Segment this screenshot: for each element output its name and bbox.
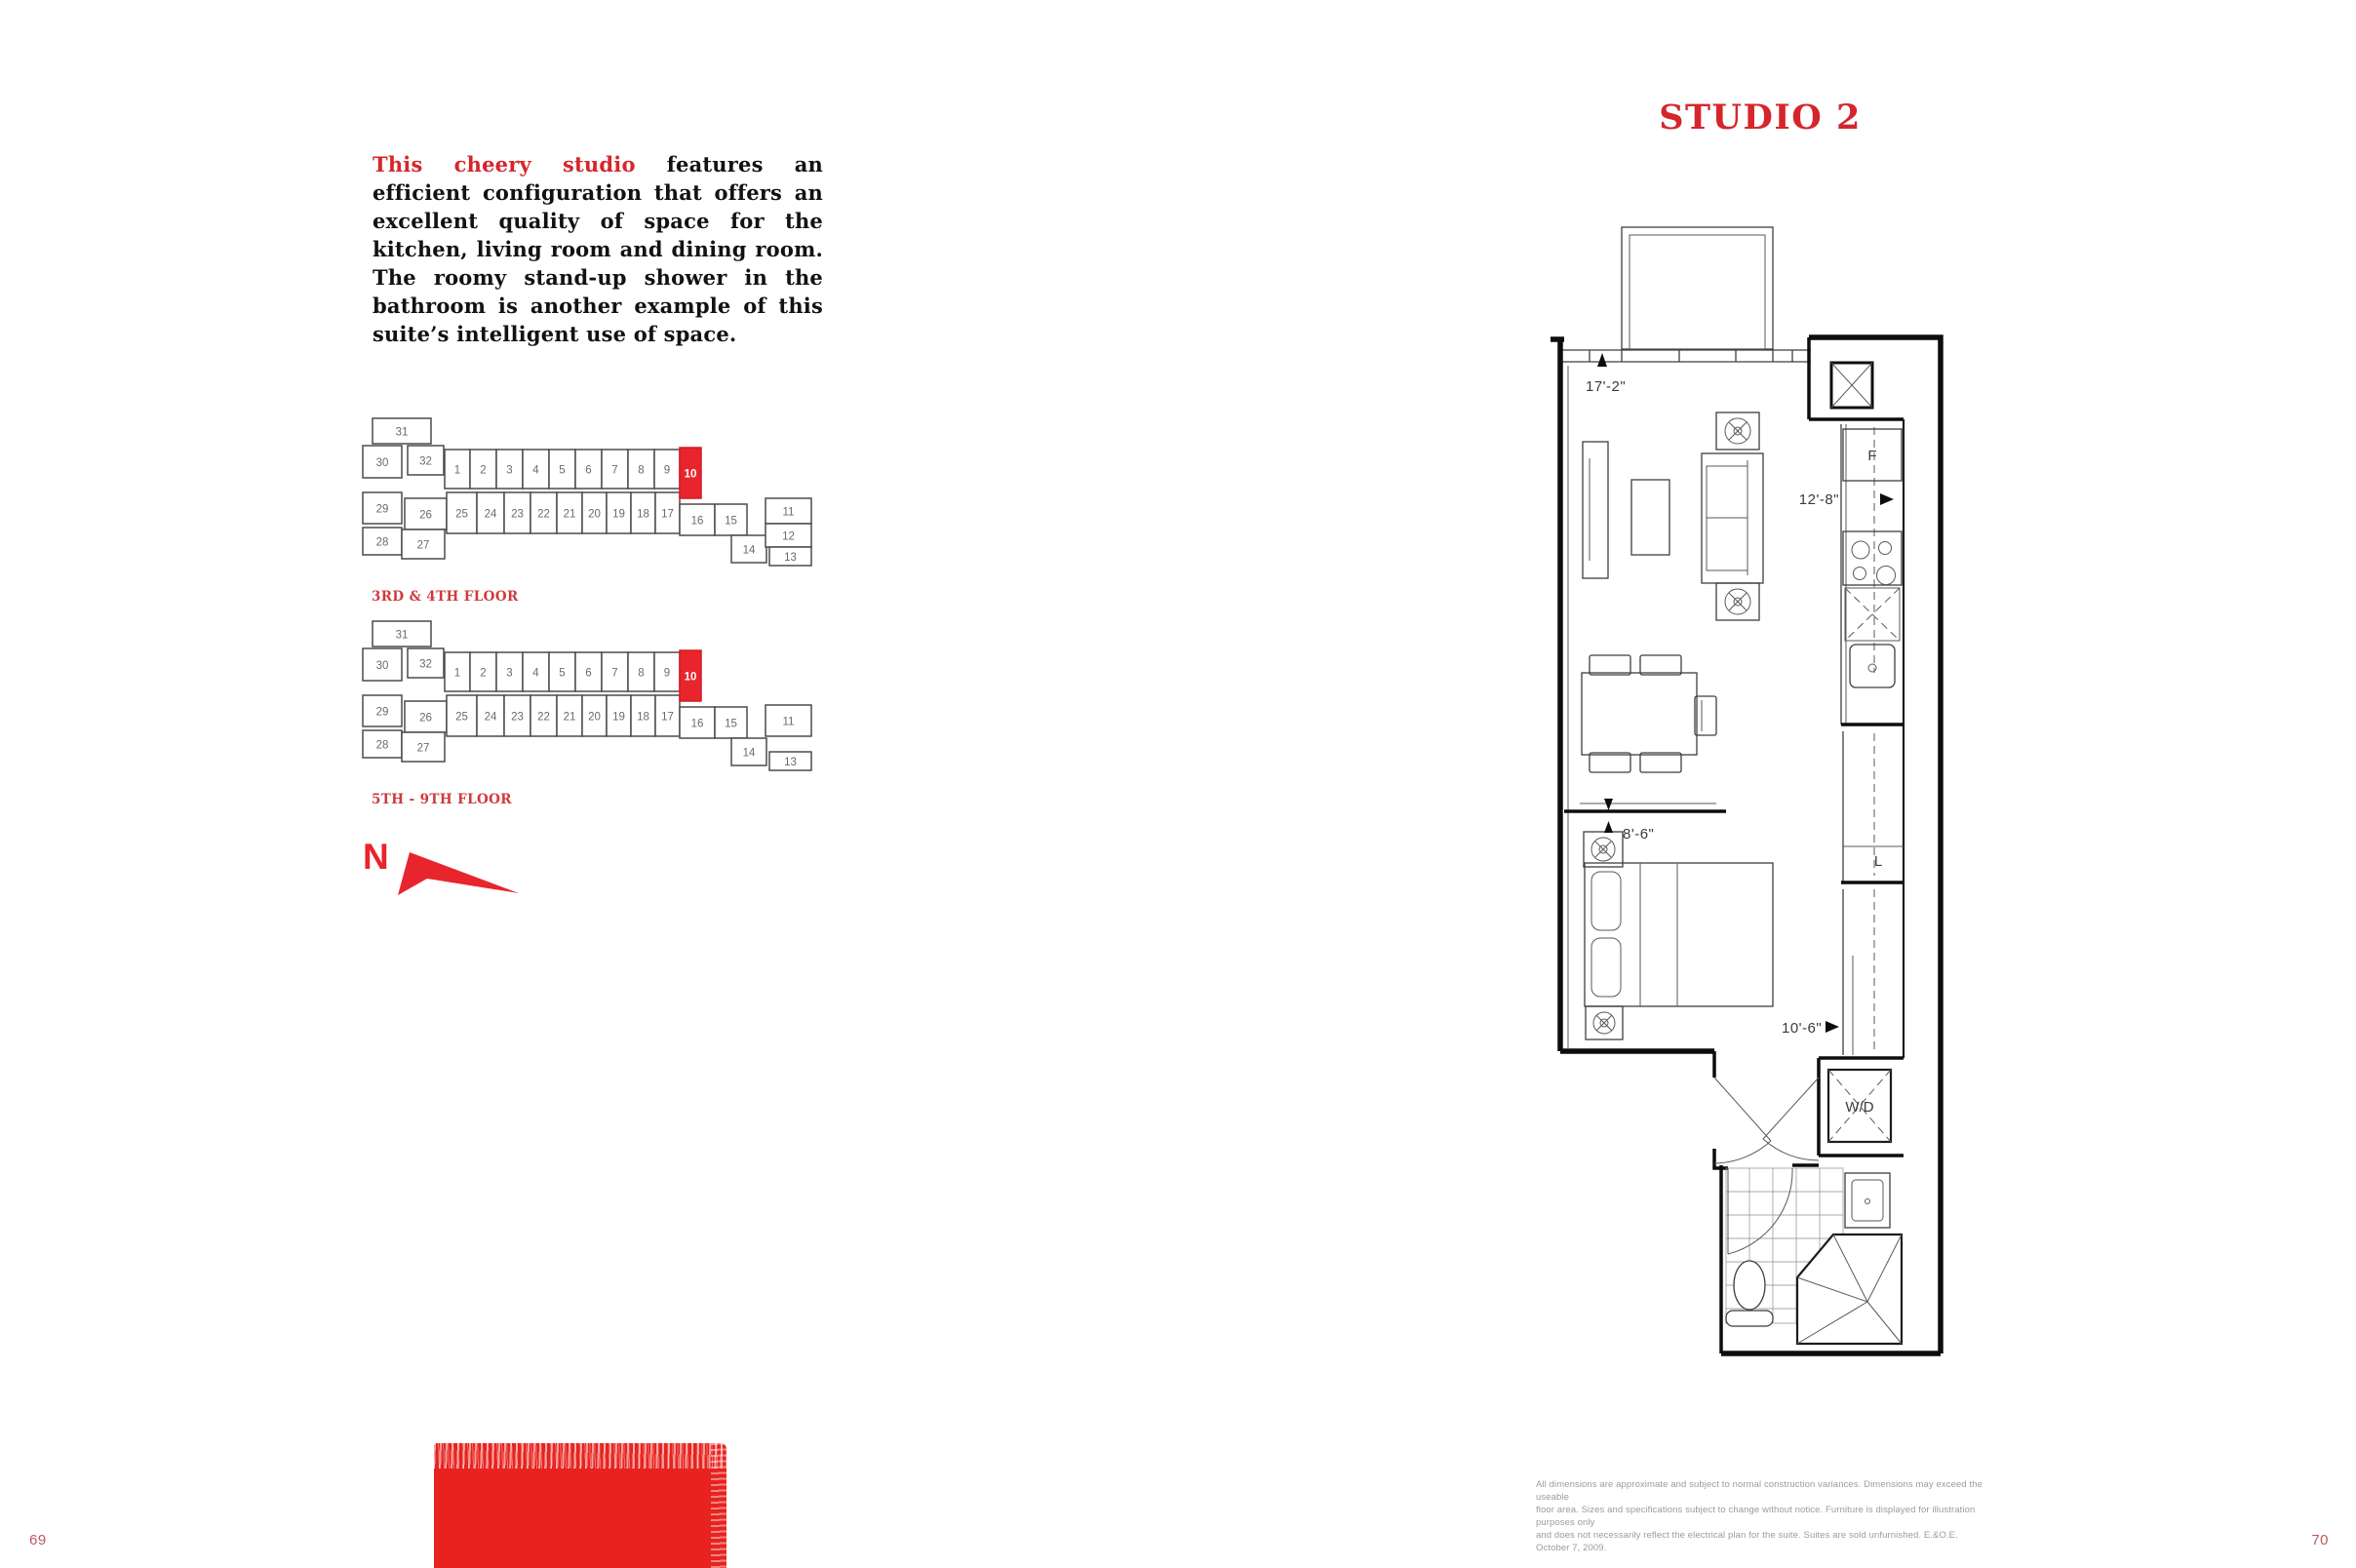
- keyplan-unit-number: 32: [419, 456, 432, 468]
- keyplan-unit-number: 30: [376, 660, 389, 672]
- keyplan-unit-number: 3: [506, 465, 512, 477]
- tv-console: [1583, 442, 1608, 578]
- keyplan-unit-number: 16: [691, 516, 704, 528]
- keyplan-unit-number: 15: [725, 516, 737, 528]
- keyplan-5th-9th-floor: 3130321234567892928262725242322212019181…: [359, 615, 817, 773]
- keyplan-unit-number: 14: [743, 545, 756, 557]
- svg-text:17'-2": 17'-2": [1586, 378, 1626, 395]
- keyplan-unit-number: 27: [417, 540, 430, 552]
- intro-body: features an efficient configuration that…: [373, 152, 823, 346]
- keyplan-unit-number: 28: [376, 537, 389, 549]
- keyplan-label-5th-9th: 5TH - 9TH FLOOR: [372, 792, 512, 807]
- keyplan-unit-number: 20: [588, 712, 601, 724]
- dining-table: [1582, 655, 1716, 772]
- keyplan-unit-number: 21: [564, 712, 576, 724]
- keyplan-unit-number: 29: [376, 707, 389, 719]
- intro-paragraph: This cheery studio features an efficient…: [373, 150, 823, 348]
- disclaimer-line: All dimensions are approximate and subje…: [1536, 1478, 1994, 1504]
- partition-wall: [1564, 804, 1726, 811]
- keyplan-unit-number: 23: [511, 509, 524, 521]
- keyplan-label-3rd-4th: 3RD & 4TH FLOOR: [372, 589, 519, 605]
- keyplan-unit-number: 22: [537, 712, 550, 724]
- brochure-spread: { "pages": { "left_number": "69", "right…: [0, 0, 2356, 1568]
- svg-text:12'-8": 12'-8": [1799, 491, 1839, 508]
- svg-text:8'-6": 8'-6": [1623, 826, 1654, 843]
- keyplan-unit-number: 5: [559, 465, 565, 477]
- keyplan-unit-number: 23: [511, 712, 524, 724]
- light-icon: [1716, 412, 1759, 450]
- keyplan-unit-number: 17: [661, 509, 674, 521]
- dimension-17-2: 17'-2": [1586, 353, 1626, 395]
- keyplan-unit-number: 26: [419, 510, 432, 522]
- keyplan-unit-number: 5: [559, 668, 565, 680]
- shaft: [1831, 363, 1872, 408]
- keyplan-unit-number: 30: [376, 457, 389, 469]
- keyplan-unit-number: 1: [454, 465, 460, 477]
- keyplan-unit-number: 14: [743, 748, 756, 760]
- disclaimer: All dimensions are approximate and subje…: [1536, 1478, 1994, 1554]
- keyplan-3rd-4th-floor: 3130321234567892928262725242322212019181…: [359, 412, 817, 570]
- coffee-table: [1631, 480, 1669, 555]
- light-icon: [1584, 832, 1623, 867]
- keyplan-unit-number: 2: [480, 465, 486, 477]
- keyplan-unit-number: 19: [612, 509, 625, 521]
- keyplan-unit-number: 17: [661, 712, 674, 724]
- north-indicator: N: [361, 839, 536, 907]
- bathroom-sink: [1845, 1173, 1890, 1228]
- shower: [1797, 1235, 1902, 1344]
- svg-text:10'-6": 10'-6": [1782, 1020, 1822, 1037]
- wd-door: [1763, 1078, 1819, 1160]
- bed: [1585, 863, 1773, 1006]
- fridge-label: F: [1867, 448, 1876, 464]
- keyplan-unit-number: 32: [419, 659, 432, 671]
- keyplan-unit-number: 13: [784, 552, 797, 564]
- dimension-8-6: 8'-6": [1604, 799, 1654, 843]
- keyplan-unit-number: 8: [638, 668, 644, 680]
- dimension-10-6: 10'-6": [1782, 1020, 1839, 1037]
- bathroom-door: [1728, 1168, 1792, 1254]
- keyplan-unit-number: 11: [783, 507, 795, 519]
- keyplan-unit-number: 19: [612, 712, 625, 724]
- keyplan-unit-number: 4: [532, 668, 539, 680]
- toilet: [1726, 1261, 1773, 1326]
- keyplan-unit-number: 26: [419, 713, 432, 725]
- red-paint-swatch: [434, 1443, 726, 1568]
- keyplan-unit-number: 1: [454, 668, 460, 680]
- keyplan-unit-number: 24: [485, 509, 497, 521]
- closets: [1841, 731, 1904, 1055]
- north-letter: N: [363, 839, 389, 875]
- keyplan-unit-number: 28: [376, 740, 389, 752]
- keyplan-unit-number: 29: [376, 504, 389, 516]
- north-arrow-icon: [396, 852, 523, 899]
- light-icon: [1586, 1006, 1623, 1039]
- linen-label: L: [1874, 853, 1882, 870]
- keyplan-unit-number: 10: [685, 469, 697, 481]
- disclaimer-line: floor area. Sizes and specifications sub…: [1536, 1504, 1994, 1529]
- keyplan-unit-number: 16: [691, 719, 704, 730]
- keyplan-unit-number: 11: [783, 717, 795, 728]
- light-icon: [1716, 583, 1759, 620]
- page-number-right: 70: [2311, 1532, 2329, 1548]
- disclaimer-line: and does not necessarily reflect the ele…: [1536, 1529, 1994, 1554]
- balcony: [1622, 227, 1773, 349]
- keyplan-unit-number: 31: [396, 427, 409, 439]
- bathroom: [1726, 1168, 1902, 1344]
- washer-dryer-label: W/D: [1845, 1099, 1873, 1116]
- intro-highlight: This cheery studio: [373, 152, 636, 176]
- keyplan-unit-number: 10: [685, 672, 697, 684]
- page-number-left: 69: [29, 1532, 47, 1548]
- keyplan-unit-number: 24: [485, 712, 497, 724]
- keyplan-unit-number: 8: [638, 465, 644, 477]
- page-title: STUDIO 2: [1658, 98, 1863, 137]
- keyplan-unit-number: 21: [564, 509, 576, 521]
- keyplan-unit-number: 13: [784, 757, 797, 768]
- keyplan-unit-number: 22: [537, 509, 550, 521]
- keyplan-unit-number: 6: [585, 668, 591, 680]
- keyplan-unit-number: 6: [585, 465, 591, 477]
- keyplan-unit-number: 3: [506, 668, 512, 680]
- keyplan-unit-number: 18: [637, 509, 649, 521]
- floorplan-drawing: 17'-2" 12'-8" 8'-6" 10'-6" F L W/D: [1531, 215, 1960, 1375]
- keyplan-unit-number: 31: [396, 630, 409, 642]
- keyplan-unit-number: 9: [664, 465, 670, 477]
- keyplan-unit-number: 7: [611, 668, 617, 680]
- keyplan-unit-number: 20: [588, 509, 601, 521]
- keyplan-unit-number: 7: [611, 465, 617, 477]
- window-wall: [1562, 350, 1811, 362]
- keyplan-unit-number: 9: [664, 668, 670, 680]
- entry-door: [1714, 1078, 1771, 1163]
- keyplan-unit-number: 25: [455, 712, 468, 724]
- keyplan-unit-number: 18: [637, 712, 649, 724]
- sofa: [1702, 453, 1763, 583]
- keyplan-unit-number: 4: [532, 465, 539, 477]
- keyplan-unit-number: 2: [480, 668, 486, 680]
- keyplan-unit-number: 12: [782, 531, 795, 543]
- kitchen: [1841, 424, 1904, 725]
- keyplan-unit-number: 27: [417, 743, 430, 755]
- keyplan-unit-number: 15: [725, 719, 737, 730]
- keyplan-unit-number: 25: [455, 509, 468, 521]
